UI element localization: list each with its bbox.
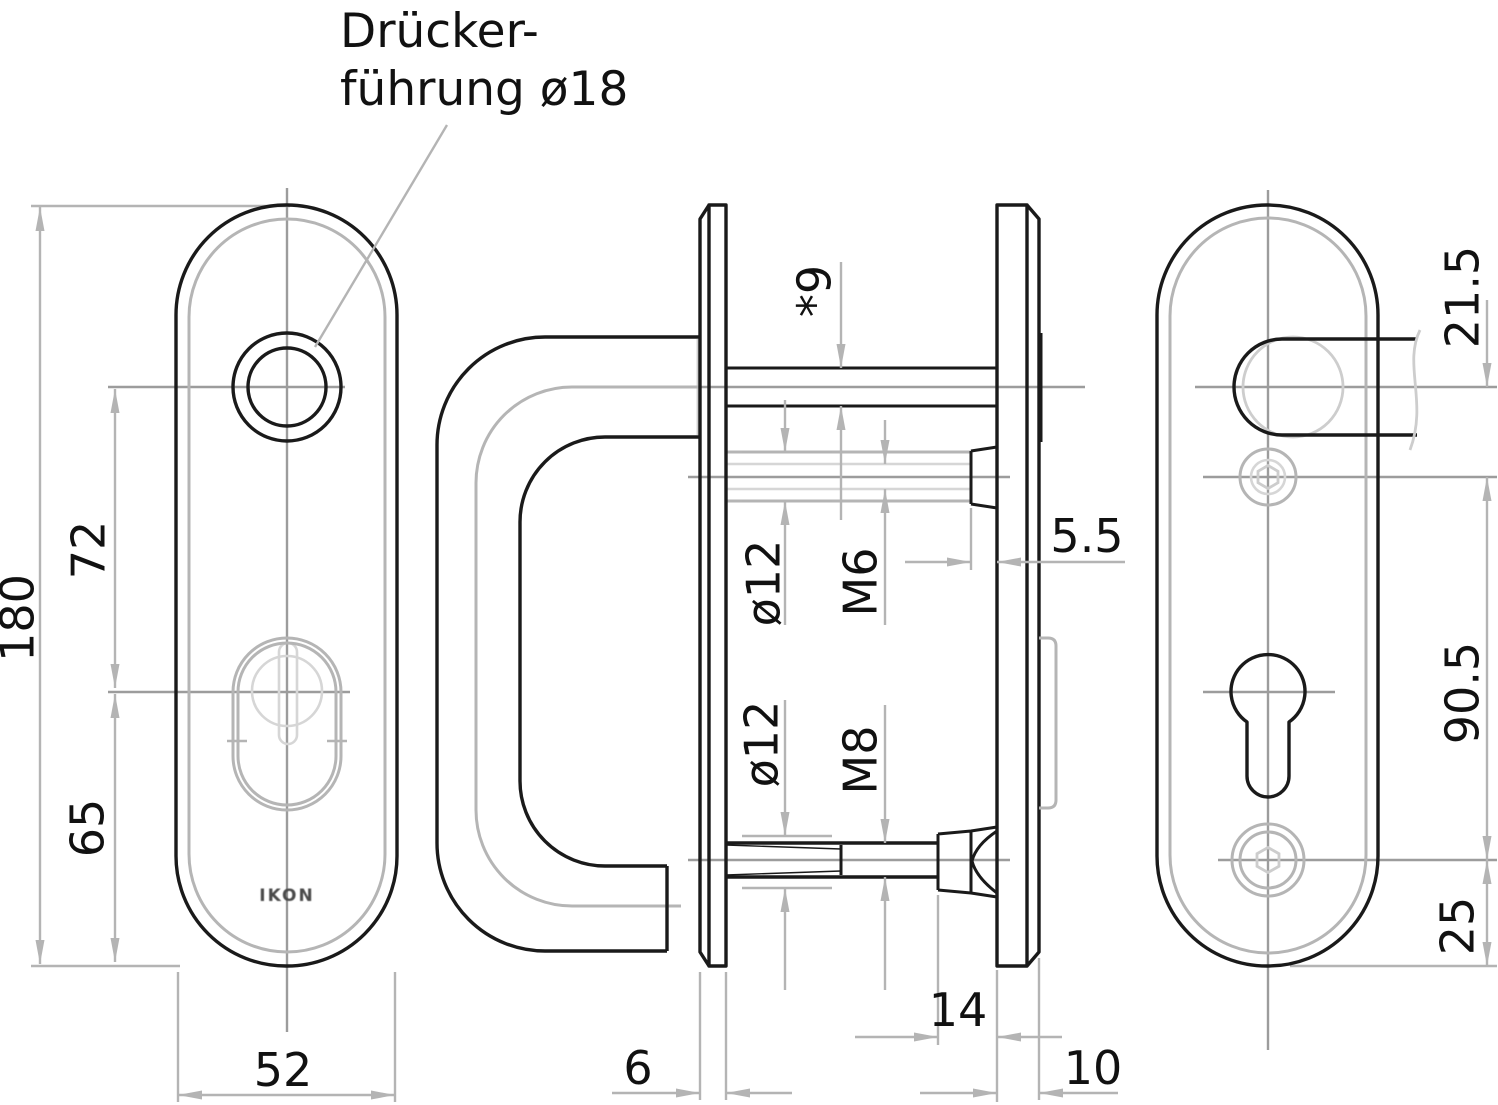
dim-sleeve-dia-top: ø12 — [737, 540, 791, 627]
dim-screw-spacing: 90.5 — [1436, 642, 1490, 744]
annotation-line2: führung ø18 — [340, 62, 628, 117]
sleeve-nut-cone — [972, 831, 997, 893]
front-plate-view: IKON — [31, 188, 397, 1032]
handle-tube-edge-line — [476, 387, 700, 906]
annotation-druckerfuehrung: Drücker- führung ø18 — [315, 4, 628, 347]
dimension-labels: 180 72 65 52 *9 ø12 M6 5.5 ø12 M8 14 6 1… — [0, 246, 1490, 1097]
dim-screw-to-bottom: 25 — [1431, 897, 1485, 956]
dim-handle-to-screw: 21.5 — [1436, 246, 1490, 348]
dim-handle-to-cylinder: 72 — [62, 521, 116, 580]
dim-screw-top: M6 — [834, 548, 888, 617]
cylinder-cover-side-profile — [1039, 638, 1056, 808]
leader-line — [315, 125, 447, 347]
dim-front-plate-thickness: 6 — [623, 1041, 652, 1095]
manufacturer-logo: IKON — [259, 886, 314, 906]
front-plate-side-profile — [700, 205, 726, 966]
dim-plate-height: 180 — [0, 574, 45, 662]
dim-spindle-square: *9 — [788, 265, 842, 317]
back-plate-side-profile — [997, 205, 1039, 966]
dim-screw-bottom: M8 — [834, 726, 888, 795]
dim-back-plate-thickness: 10 — [1064, 1041, 1123, 1095]
dim-plate-width: 52 — [254, 1043, 313, 1097]
annotation-line1: Drücker- — [340, 4, 539, 59]
door-fitting-dimension-drawing: IKON Drücker- führung ø18 — [0, 0, 1498, 1105]
handle-inner-outline — [520, 437, 700, 866]
dim-head-depth: 5.5 — [1050, 509, 1123, 563]
dim-sleeve-dia-bottom: ø12 — [735, 701, 789, 788]
dim-nut-length: 14 — [929, 983, 988, 1037]
technical-drawing-page: IKON Drücker- führung ø18 — [0, 0, 1498, 1105]
dim-cylinder-to-bottom: 65 — [61, 799, 115, 858]
handle-break-line — [1410, 330, 1420, 450]
